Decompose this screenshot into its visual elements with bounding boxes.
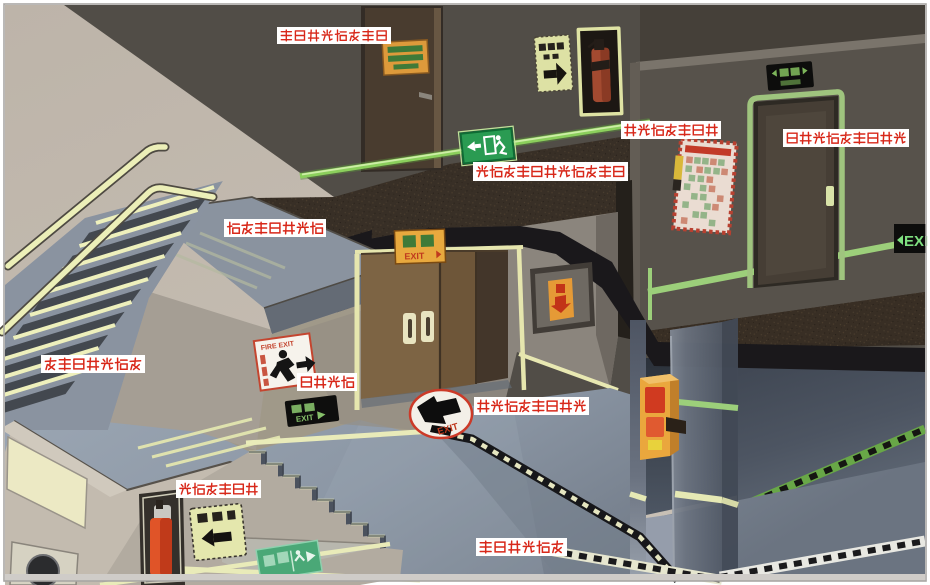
svg-text:EXIT: EXIT xyxy=(404,251,425,262)
svg-text:EXI: EXI xyxy=(904,233,928,250)
